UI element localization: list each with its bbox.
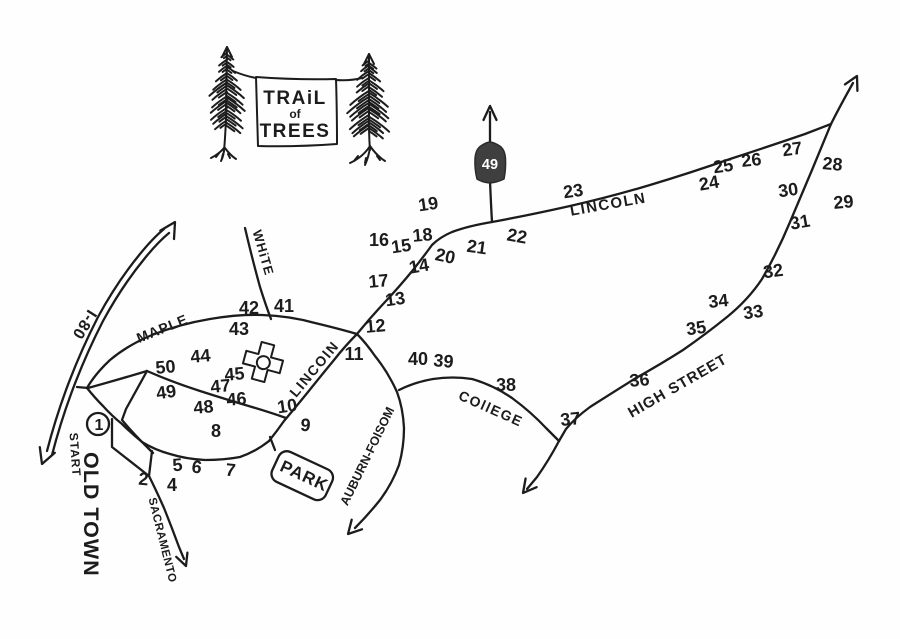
svg-text:26: 26: [740, 149, 762, 171]
svg-text:38: 38: [496, 375, 516, 395]
svg-text:28: 28: [822, 153, 844, 175]
svg-text:37: 37: [559, 408, 581, 430]
svg-text:29: 29: [833, 191, 855, 213]
svg-text:44: 44: [190, 345, 212, 367]
svg-text:47: 47: [210, 375, 232, 397]
svg-text:25: 25: [712, 155, 735, 178]
svg-text:32: 32: [762, 260, 785, 283]
svg-text:36: 36: [629, 369, 651, 391]
svg-text:13: 13: [384, 288, 407, 311]
svg-text:22: 22: [505, 225, 528, 248]
svg-text:5: 5: [172, 455, 184, 476]
svg-text:34: 34: [707, 290, 729, 312]
svg-text:23: 23: [562, 180, 585, 203]
svg-text:40: 40: [408, 349, 428, 369]
svg-text:19: 19: [417, 193, 440, 216]
svg-text:14: 14: [407, 255, 430, 278]
svg-text:7: 7: [225, 460, 237, 481]
svg-text:10: 10: [276, 395, 299, 418]
svg-text:17: 17: [368, 270, 390, 292]
svg-text:of: of: [289, 107, 301, 121]
svg-text:TRAiL: TRAiL: [263, 88, 326, 109]
svg-text:27: 27: [781, 138, 804, 161]
svg-text:15: 15: [390, 235, 413, 258]
svg-text:OLD TOWN: OLD TOWN: [79, 452, 103, 577]
svg-text:39: 39: [433, 350, 455, 372]
svg-text:11: 11: [344, 344, 363, 364]
svg-text:49: 49: [482, 157, 498, 173]
svg-text:48: 48: [193, 396, 215, 418]
svg-text:35: 35: [685, 317, 708, 340]
svg-text:9: 9: [300, 415, 312, 436]
svg-text:43: 43: [229, 319, 249, 339]
svg-text:18: 18: [412, 224, 434, 246]
svg-text:20: 20: [433, 244, 457, 268]
svg-text:41: 41: [274, 296, 294, 316]
svg-text:50: 50: [155, 356, 177, 378]
svg-text:31: 31: [788, 211, 811, 234]
svg-text:2: 2: [138, 469, 150, 490]
svg-text:8: 8: [211, 421, 221, 441]
svg-text:42: 42: [239, 298, 259, 318]
svg-text:30: 30: [777, 179, 800, 202]
svg-text:33: 33: [742, 301, 765, 324]
svg-text:TREES: TREES: [260, 121, 331, 142]
svg-text:4: 4: [167, 475, 177, 495]
svg-text:16: 16: [369, 230, 389, 250]
svg-text:21: 21: [466, 236, 489, 259]
svg-text:1: 1: [95, 417, 104, 434]
svg-text:49: 49: [155, 381, 178, 404]
svg-text:12: 12: [365, 315, 387, 337]
